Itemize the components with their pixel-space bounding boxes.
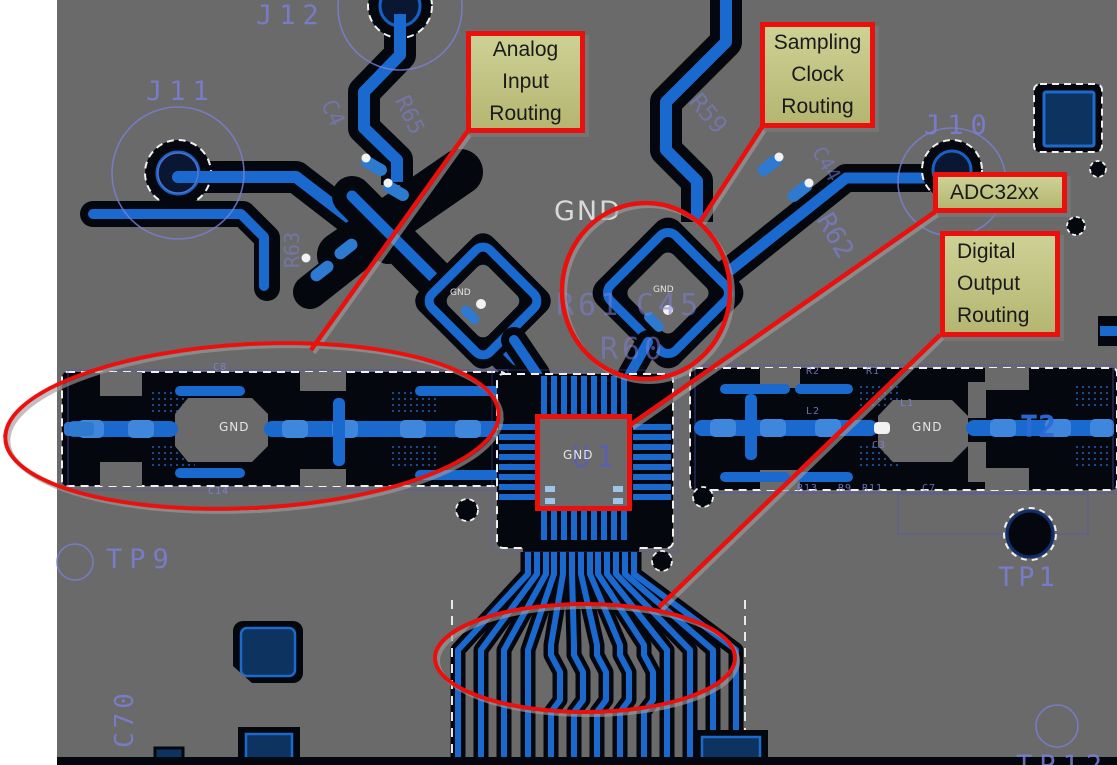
pcb-layout-screenshot: J12 J11 J10 TP9 TP1 TP12 U1 T2 C70 R63 R… (0, 0, 1117, 765)
adc-leader-line (630, 212, 935, 425)
analog-input-ellipse (1, 331, 503, 521)
sampling-clock-callout: Sampling Clock Routing (760, 22, 875, 128)
adc-chip-rectangle (538, 417, 630, 509)
digital-output-ellipse (435, 604, 735, 712)
sampling-clock-leader-line (700, 127, 762, 222)
sampling-clock-ellipse (562, 203, 730, 379)
digital-output-callout: Digital Output Routing (940, 231, 1060, 337)
analog-input-leader-line (311, 132, 467, 350)
analog-input-callout: Analog Input Routing (466, 31, 585, 133)
adc-callout: ADC32xx (933, 172, 1067, 213)
